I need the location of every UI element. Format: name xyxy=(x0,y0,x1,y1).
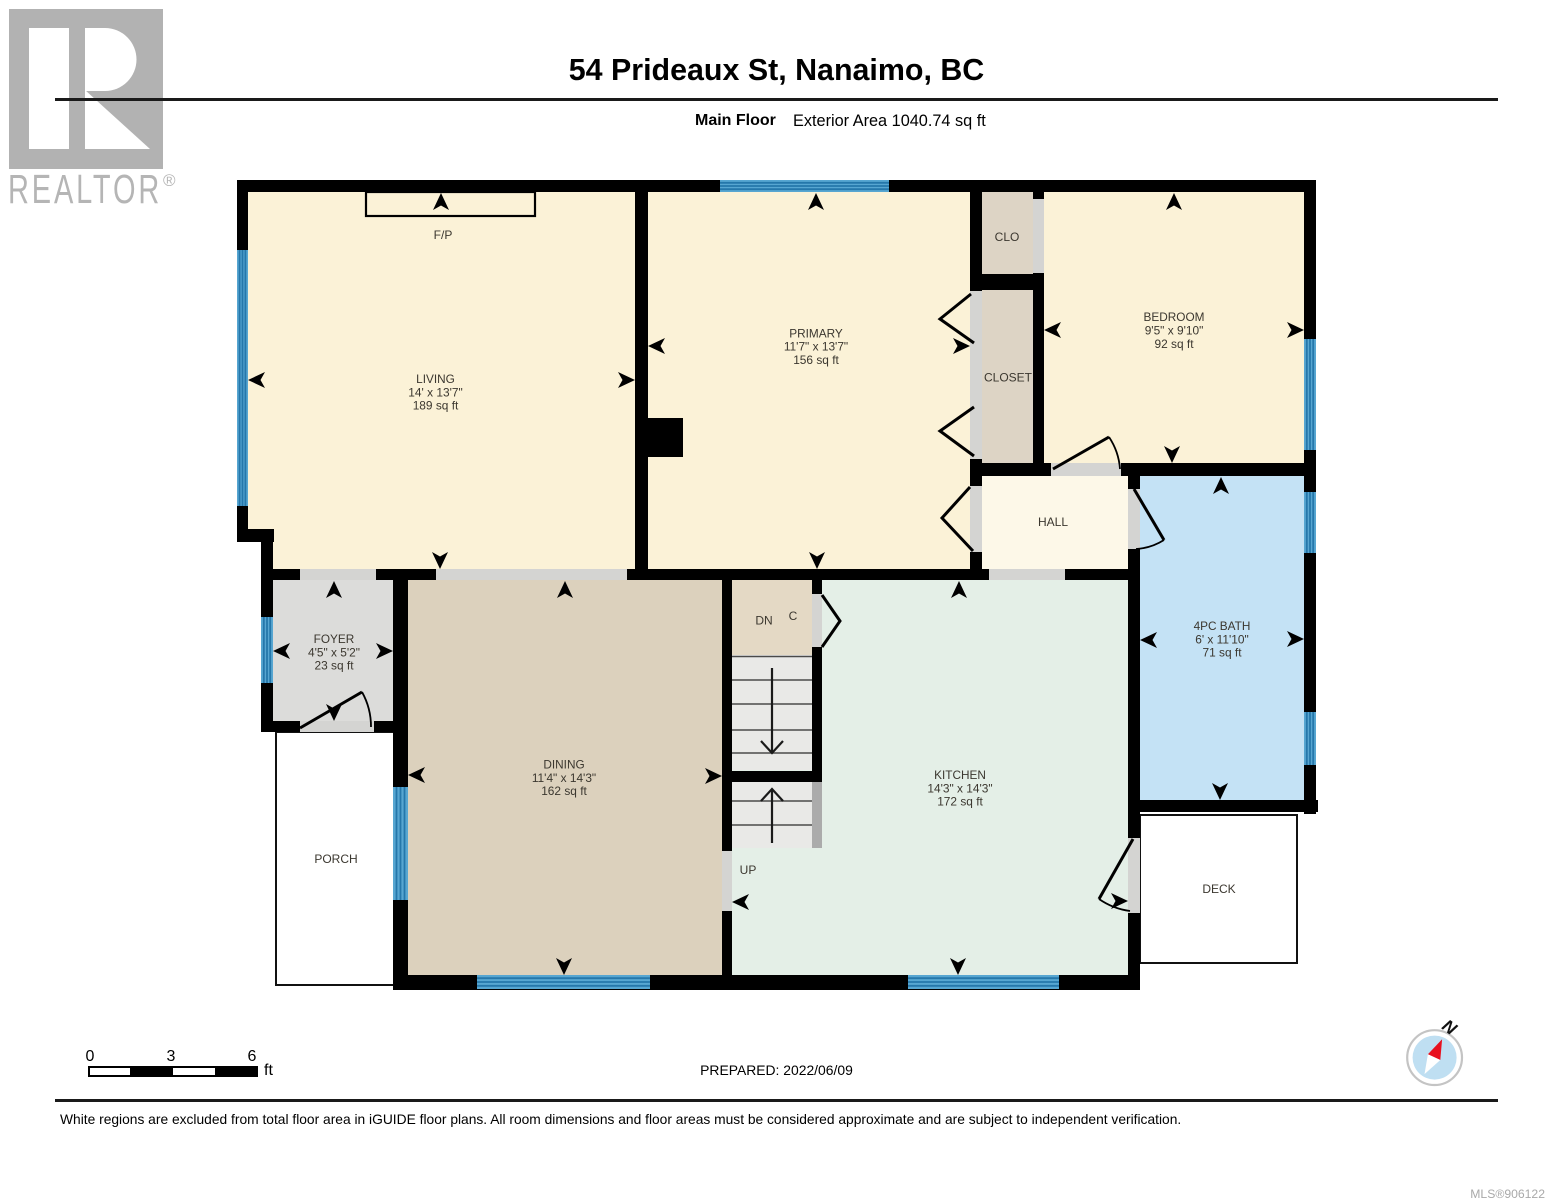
svg-text:4'5" x 5'2": 4'5" x 5'2" xyxy=(308,645,360,659)
svg-text:162 sq ft: 162 sq ft xyxy=(541,784,587,798)
svg-text:11'4" x 14'3": 11'4" x 14'3" xyxy=(532,771,596,785)
svg-text:HALL: HALL xyxy=(1038,515,1068,529)
svg-text:156 sq ft: 156 sq ft xyxy=(793,353,839,367)
svg-text:CLOSET: CLOSET xyxy=(984,371,1033,385)
svg-text:LIVING: LIVING xyxy=(416,372,455,386)
svg-text:172 sq ft: 172 sq ft xyxy=(937,795,983,809)
svg-text:14'3" x 14'3": 14'3" x 14'3" xyxy=(927,781,992,795)
svg-text:DN: DN xyxy=(755,613,772,627)
svg-text:11'7" x 13'7": 11'7" x 13'7" xyxy=(784,340,848,354)
svg-text:4PC BATH: 4PC BATH xyxy=(1194,619,1251,633)
svg-text:BEDROOM: BEDROOM xyxy=(1144,310,1205,324)
svg-text:92 sq ft: 92 sq ft xyxy=(1155,337,1195,351)
svg-text:PORCH: PORCH xyxy=(314,852,357,866)
svg-text:71 sq ft: 71 sq ft xyxy=(1203,646,1243,660)
svg-text:9'5" x 9'10": 9'5" x 9'10" xyxy=(1145,324,1204,338)
svg-text:PRIMARY: PRIMARY xyxy=(789,326,843,340)
svg-text:23 sq ft: 23 sq ft xyxy=(315,659,355,673)
svg-text:6' x 11'10": 6' x 11'10" xyxy=(1195,632,1249,646)
svg-text:KITCHEN: KITCHEN xyxy=(934,768,986,782)
svg-text:DECK: DECK xyxy=(1202,882,1235,896)
svg-text:14' x 13'7": 14' x 13'7" xyxy=(408,385,462,399)
svg-text:FOYER: FOYER xyxy=(314,632,355,646)
svg-text:C: C xyxy=(789,609,798,623)
svg-text:UP: UP xyxy=(740,863,757,877)
svg-text:DINING: DINING xyxy=(543,758,584,772)
svg-text:189 sq ft: 189 sq ft xyxy=(413,399,459,413)
svg-text:F/P: F/P xyxy=(434,228,453,242)
svg-text:CLO: CLO xyxy=(995,230,1020,244)
